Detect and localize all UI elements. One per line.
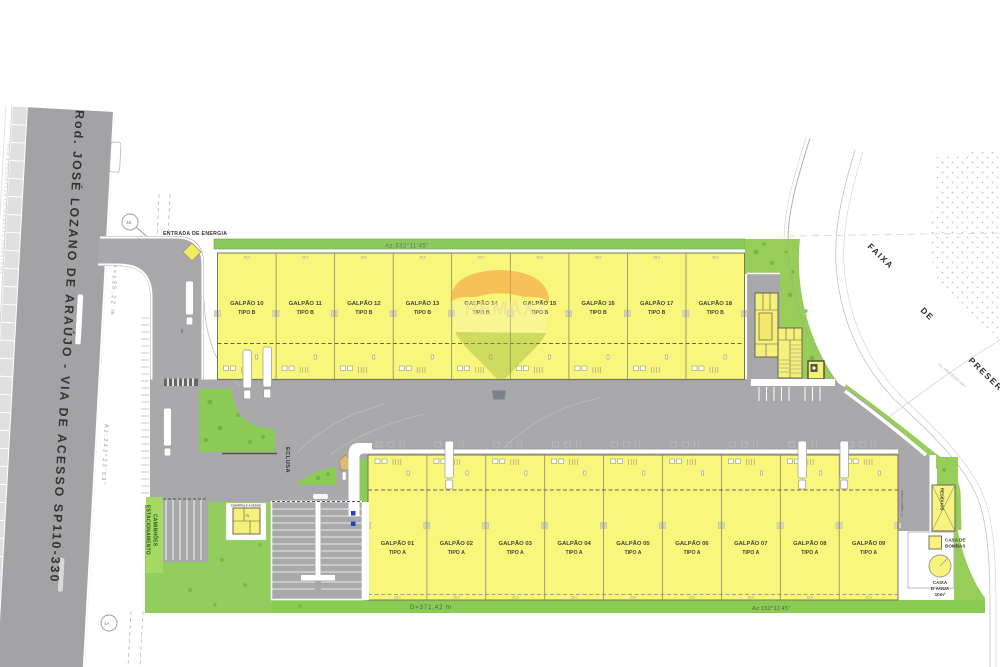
svg-text:TIPO B: TIPO B <box>297 310 315 316</box>
svg-text:25,0: 25,0 <box>653 256 660 260</box>
svg-text:10m³: 10m³ <box>935 592 946 597</box>
svg-text:25,0: 25,0 <box>806 596 813 600</box>
svg-text:CONTROLE ACESSO: CONTROLE ACESSO <box>231 504 262 508</box>
svg-text:GALPÃO 07: GALPÃO 07 <box>734 540 768 547</box>
svg-text:GALPÃO 02: GALPÃO 02 <box>440 540 474 547</box>
svg-text:25,0: 25,0 <box>747 596 754 600</box>
svg-text:TIPO A: TIPO A <box>801 550 818 556</box>
svg-text:25,0: 25,0 <box>478 256 485 260</box>
svg-text:GALPÃO 18: GALPÃO 18 <box>699 300 733 307</box>
svg-text:CAIXA: CAIXA <box>933 580 948 585</box>
svg-text:Az:332°11'45": Az:332°11'45" <box>385 244 429 250</box>
svg-text:25,0: 25,0 <box>361 256 368 260</box>
svg-text:25,0: 25,0 <box>595 256 602 260</box>
svg-text:Az:152°11'45": Az:152°11'45" <box>752 606 791 612</box>
svg-text:GALPÃO 06: GALPÃO 06 <box>675 540 709 547</box>
svg-text:25,0: 25,0 <box>419 256 426 260</box>
svg-text:TIPO A: TIPO A <box>860 550 877 556</box>
svg-text:25,0: 25,0 <box>630 596 637 600</box>
svg-text:25,0: 25,0 <box>302 256 309 260</box>
svg-text:TIPO A: TIPO A <box>389 550 406 556</box>
svg-text:D´AGUA: D´AGUA <box>931 586 950 591</box>
svg-text:GALPÃO 08: GALPÃO 08 <box>793 540 827 547</box>
svg-text:CAMINHÕES: CAMINHÕES <box>152 514 159 547</box>
svg-text:25,0: 25,0 <box>865 596 872 600</box>
svg-text:21 vagas motos: 21 vagas motos <box>900 490 904 517</box>
svg-text:25,0: 25,0 <box>453 596 460 600</box>
svg-text:GALPÃO 12: GALPÃO 12 <box>347 300 381 307</box>
svg-text:25,0: 25,0 <box>536 256 543 260</box>
svg-text:REMAX: REMAX <box>464 299 535 320</box>
svg-text:Ac.: Ac. <box>180 329 184 334</box>
svg-text:GALPÃO 04: GALPÃO 04 <box>557 540 591 547</box>
svg-text:GALPÃO 16: GALPÃO 16 <box>581 300 615 307</box>
svg-text:GALPÃO 05: GALPÃO 05 <box>616 540 650 547</box>
svg-text:TIPO A: TIPO A <box>742 550 759 556</box>
svg-text:25,0: 25,0 <box>512 596 519 600</box>
svg-text:TIPO A: TIPO A <box>566 550 583 556</box>
svg-text:TIPO A: TIPO A <box>448 550 465 556</box>
svg-text:ESTACIONAMENTO: ESTACIONAMENTO <box>145 505 151 555</box>
svg-text:GALPÃO 01: GALPÃO 01 <box>381 540 415 547</box>
svg-text:TIPO A: TIPO A <box>624 550 641 556</box>
svg-text:4A: 4A <box>104 621 110 626</box>
svg-text:TIPO B: TIPO B <box>707 310 725 316</box>
svg-text:75: 75 <box>245 514 249 518</box>
svg-text:GALPÃO 17: GALPÃO 17 <box>640 300 674 307</box>
svg-text:TIPO B: TIPO B <box>414 310 432 316</box>
svg-text:25,0: 25,0 <box>394 596 401 600</box>
svg-text:TIPO A: TIPO A <box>507 550 524 556</box>
svg-text:BOMBAS: BOMBAS <box>945 544 965 549</box>
svg-text:TIPO B: TIPO B <box>355 310 373 316</box>
svg-text:25,0: 25,0 <box>571 596 578 600</box>
svg-text:GALPÃO 13: GALPÃO 13 <box>406 300 440 307</box>
svg-text:25,0: 25,0 <box>243 256 250 260</box>
svg-text:TIPO B: TIPO B <box>648 310 666 316</box>
svg-text:TIPO B: TIPO B <box>589 310 607 316</box>
svg-text:4B: 4B <box>126 220 132 225</box>
svg-text:TIPO B: TIPO B <box>238 310 256 316</box>
svg-text:GALPÃO 11: GALPÃO 11 <box>289 300 323 307</box>
svg-text:GALPÃO 09: GALPÃO 09 <box>852 540 886 547</box>
svg-text:RESÍDUOS: RESÍDUOS <box>940 488 945 511</box>
svg-text:25,0: 25,0 <box>712 256 719 260</box>
svg-text:ECLUSA: ECLUSA <box>284 447 290 473</box>
svg-text:ENTRADA DE ENERGIA: ENTRADA DE ENERGIA <box>163 231 227 237</box>
svg-text:TIPO A: TIPO A <box>683 550 700 556</box>
svg-text:GALPÃO 10: GALPÃO 10 <box>230 300 264 307</box>
svg-text:CASA DE: CASA DE <box>945 538 966 543</box>
svg-text:GALPÃO 03: GALPÃO 03 <box>499 540 533 547</box>
svg-text:D=371,42 m: D=371,42 m <box>410 605 452 611</box>
svg-text:25,0: 25,0 <box>689 596 696 600</box>
